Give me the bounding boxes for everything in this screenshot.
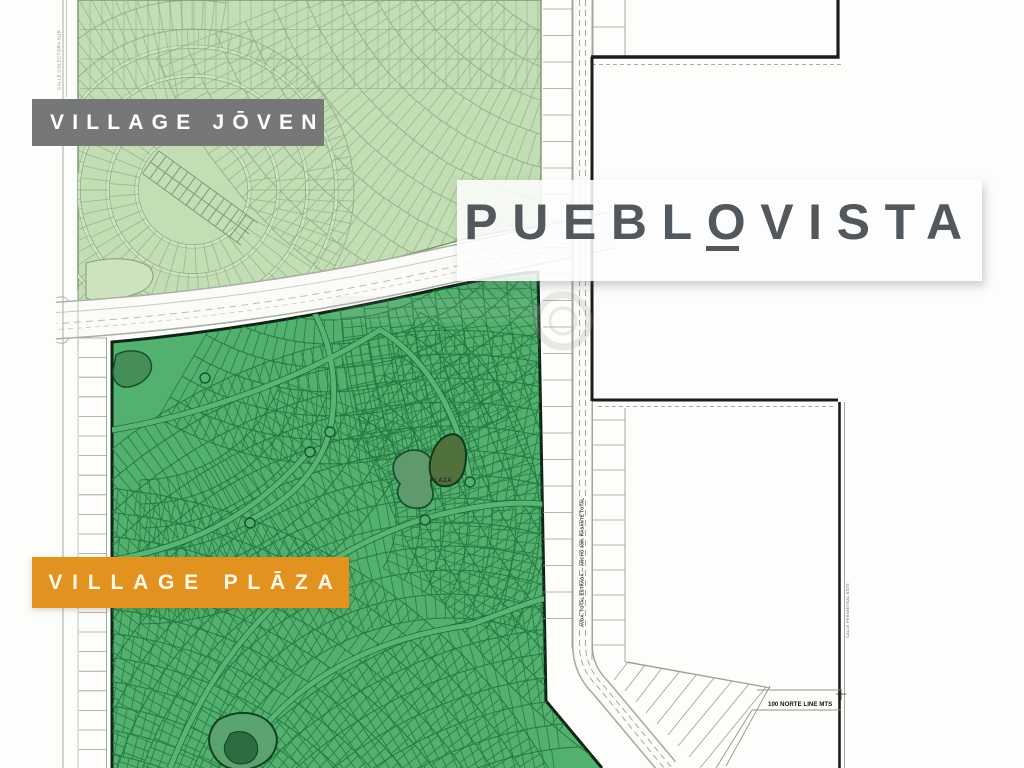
svg-text:CALLE PERIMETRAL ESTE: CALLE PERIMETRAL ESTE xyxy=(845,583,850,638)
svg-text:CALLE COLECTORA SUR: CALLE COLECTORA SUR xyxy=(57,30,62,90)
svg-text:100 NORTE LINE MTS: 100 NORTE LINE MTS xyxy=(768,701,832,708)
svg-text:PLAZA: PLAZA xyxy=(430,478,452,484)
svg-text:AVDA. TOTAL ESTRADA — ANCHO 30: AVDA. TOTAL ESTRADA — ANCHO 30M. RASANTE… xyxy=(580,498,585,627)
